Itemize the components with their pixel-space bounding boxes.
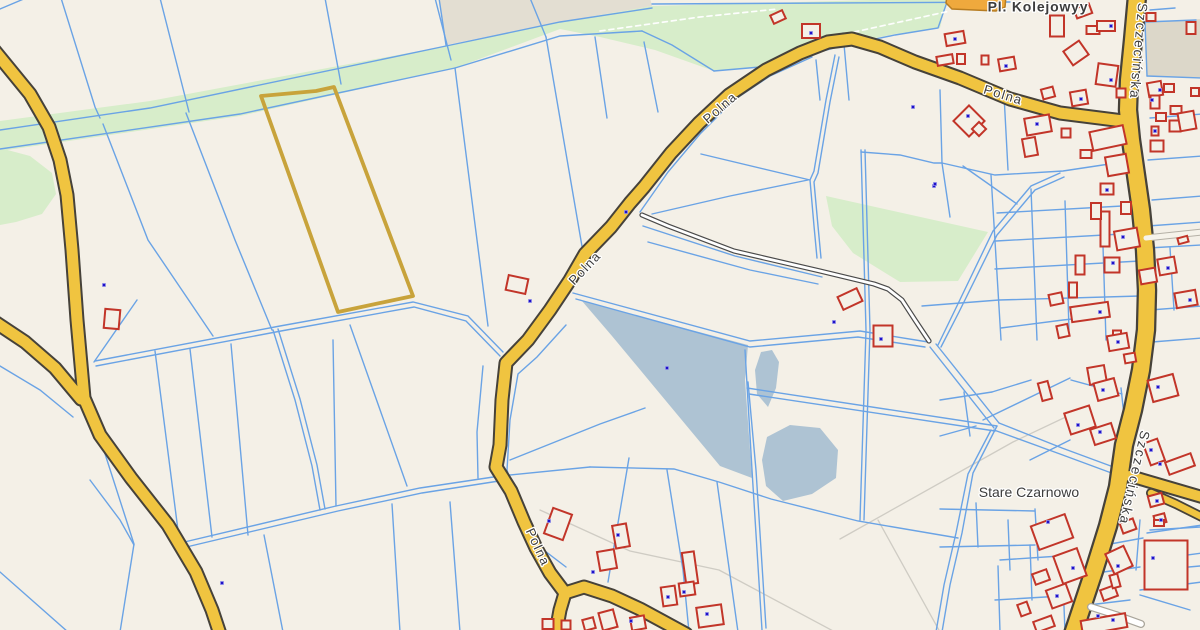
svg-text:Stare Czarnowo: Stare Czarnowo	[979, 484, 1080, 500]
svg-text:Pl. Kolejowyy: Pl. Kolejowyy	[988, 0, 1089, 15]
